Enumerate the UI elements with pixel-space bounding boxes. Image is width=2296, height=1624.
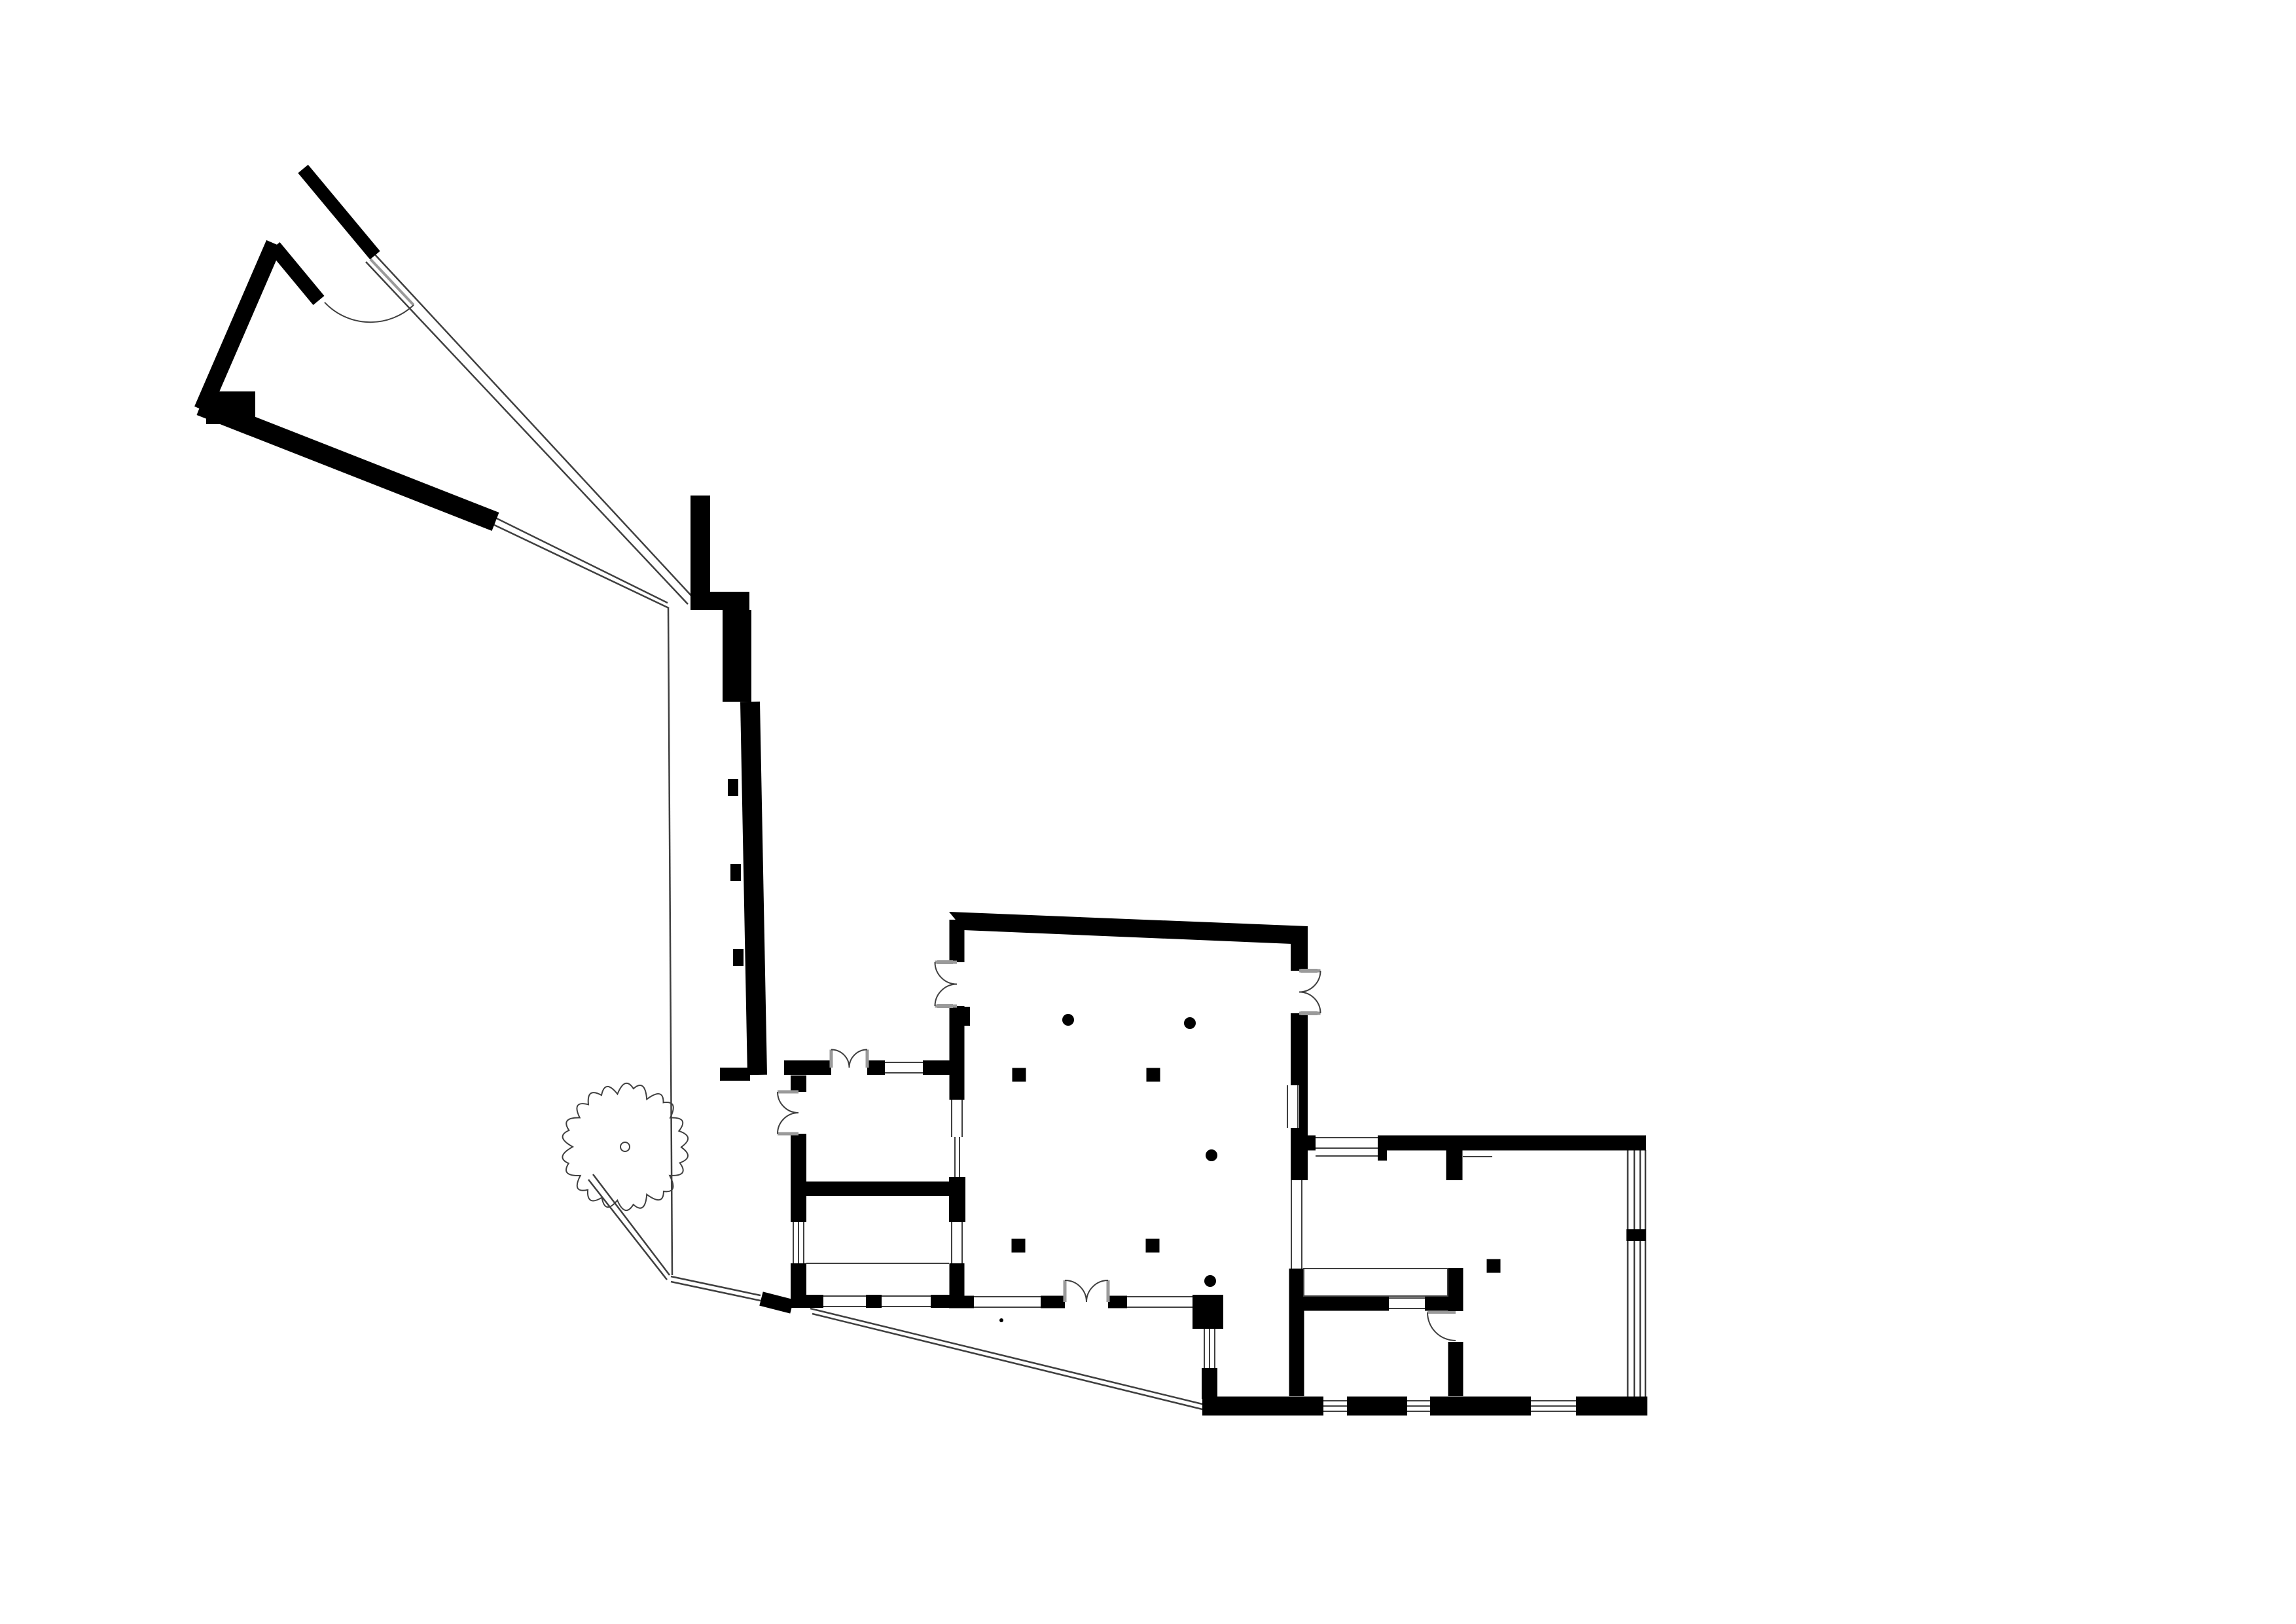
- wall: [761, 1299, 792, 1307]
- round-column: [1204, 1275, 1216, 1287]
- site-boundary-line: [493, 524, 669, 608]
- wall-pier: [730, 864, 741, 881]
- wall-pier: [206, 391, 255, 424]
- square-column: [1147, 1068, 1160, 1082]
- round-column: [1062, 1014, 1074, 1026]
- site-boundary-line: [588, 1180, 667, 1280]
- door-swing: [778, 1092, 798, 1113]
- door-swing: [935, 984, 957, 1007]
- wall-pier: [728, 779, 738, 796]
- door-swing: [935, 962, 957, 984]
- square-column: [1487, 1259, 1501, 1273]
- door-swing: [1427, 1312, 1456, 1341]
- door-swing: [325, 302, 414, 322]
- recess: [1304, 1269, 1448, 1296]
- door-swing: [1299, 992, 1321, 1014]
- tree-trunk: [620, 1142, 630, 1151]
- round-column: [1206, 1149, 1217, 1161]
- door-swing: [831, 1050, 850, 1068]
- site-boundary-line: [671, 1276, 761, 1295]
- wall: [949, 912, 1308, 945]
- wall-pier: [949, 1177, 965, 1222]
- wall-pier: [1193, 1295, 1223, 1329]
- site-boundary-line: [810, 1308, 1202, 1404]
- door-swing: [778, 1113, 798, 1134]
- site-boundary-line: [495, 518, 668, 603]
- door-leaf: [370, 259, 414, 305]
- door-swing: [1065, 1280, 1086, 1302]
- wall: [202, 244, 274, 410]
- wall: [274, 247, 319, 300]
- wall-pier: [1626, 1229, 1646, 1241]
- square-column: [1012, 1239, 1026, 1253]
- tree-canopy: [562, 1083, 688, 1210]
- floor-plan: [0, 0, 2296, 1624]
- drawing-sheet: [0, 0, 2296, 1624]
- wall: [750, 702, 757, 1075]
- square-column: [1146, 1239, 1160, 1253]
- wall: [303, 169, 375, 255]
- site-boundary-line: [593, 1174, 670, 1275]
- door-swing: [850, 1050, 868, 1068]
- wall-pier: [952, 1007, 970, 1026]
- site-boundary-line: [366, 262, 688, 604]
- wall-pier: [733, 949, 744, 966]
- plan-dot: [999, 1318, 1003, 1322]
- door-swing: [1299, 971, 1321, 992]
- wall-pier: [720, 1068, 750, 1081]
- square-column: [1013, 1068, 1026, 1082]
- site-boundary-line: [374, 254, 692, 597]
- round-column: [1184, 1017, 1196, 1029]
- door-swing: [1086, 1280, 1108, 1302]
- site-boundary-line: [671, 1282, 761, 1301]
- site-boundary-line: [812, 1314, 1202, 1409]
- wall-pier: [1378, 1136, 1387, 1161]
